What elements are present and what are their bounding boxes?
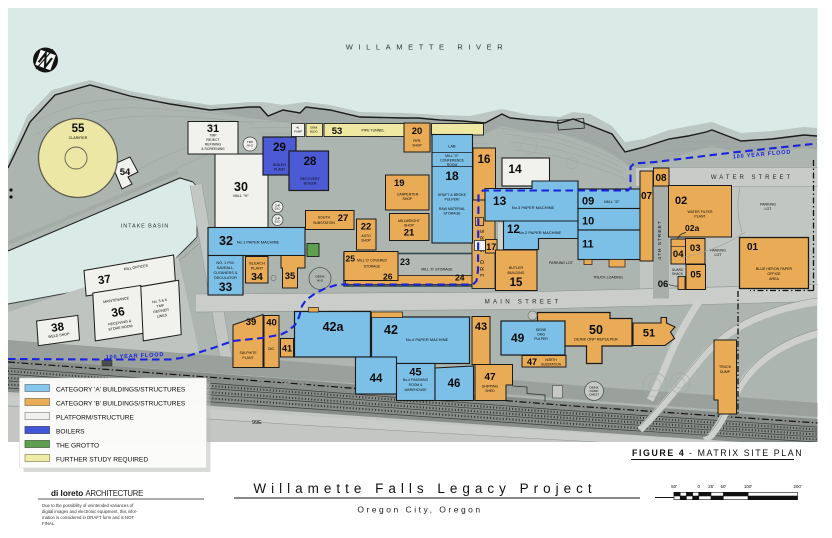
svg-text:LOT: LOT xyxy=(765,207,773,211)
svg-text:RECOVERY: RECOVERY xyxy=(300,177,320,181)
svg-text:BOILERS: BOILERS xyxy=(56,429,85,436)
svg-text:55: 55 xyxy=(72,123,85,135)
svg-text:DIG.: DIG. xyxy=(268,347,275,351)
svg-text:04: 04 xyxy=(673,249,684,260)
svg-text:40: 40 xyxy=(266,318,277,329)
svg-text:06: 06 xyxy=(658,279,669,290)
svg-text:SHED: SHED xyxy=(485,389,495,393)
svg-text:08: 08 xyxy=(655,173,667,184)
svg-text:07: 07 xyxy=(641,191,653,202)
svg-text:INTAKE BASIN: INTAKE BASIN xyxy=(121,224,169,230)
svg-text:Due to the possibility of unin: Due to the possibility of unintended var… xyxy=(42,503,134,508)
svg-text:& SCREENING: & SCREENING xyxy=(201,147,225,151)
svg-text:42: 42 xyxy=(384,323,398,337)
svg-text:27: 27 xyxy=(338,213,349,224)
svg-text:50': 50' xyxy=(671,484,677,489)
svg-text:MILL 'D' COVERED: MILL 'D' COVERED xyxy=(357,259,387,263)
svg-text:49: 49 xyxy=(511,331,525,345)
svg-text:47: 47 xyxy=(527,357,537,367)
svg-text:46: 46 xyxy=(448,378,461,390)
svg-text:14: 14 xyxy=(508,162,522,176)
svg-text:OMG: OMG xyxy=(537,333,545,337)
svg-text:MILL 'D' STORAGE: MILL 'D' STORAGE xyxy=(421,268,453,272)
svg-text:HI-O: HI-O xyxy=(247,144,254,148)
svg-text:STORAGE: STORAGE xyxy=(364,265,381,269)
svg-text:51: 51 xyxy=(643,328,655,340)
svg-text:PLANT: PLANT xyxy=(274,168,286,172)
svg-text:23: 23 xyxy=(400,257,410,267)
svg-text:SHOP: SHOP xyxy=(412,144,422,148)
svg-text:25: 25 xyxy=(346,254,356,264)
svg-text:WAREHOUSE: WAREHOUSE xyxy=(404,388,427,392)
svg-text:SILO: SILO xyxy=(275,219,281,223)
svg-text:11: 11 xyxy=(582,239,594,251)
svg-text:TMP: TMP xyxy=(209,134,217,138)
svg-text:Willamette Falls Legacy Projec: Willamette Falls Legacy Project xyxy=(253,481,596,496)
svg-text:FURTHER STUDY REQUIRED: FURTHER STUDY REQUIRED xyxy=(56,457,148,464)
svg-text:AUTO: AUTO xyxy=(361,234,371,238)
svg-text:PARKING: PARKING xyxy=(760,203,776,207)
svg-text:- MATRIX SITE PLAN: - MATRIX SITE PLAN xyxy=(689,448,803,458)
svg-text:REJECT: REJECT xyxy=(206,138,219,142)
svg-text:02a: 02a xyxy=(685,223,699,233)
svg-text:CLEANERS &: CLEANERS & xyxy=(213,271,238,275)
svg-text:16: 16 xyxy=(478,154,491,166)
svg-text:CHEST: CHEST xyxy=(589,393,599,397)
svg-text:DEINK: DEINK xyxy=(536,328,547,332)
svg-text:09: 09 xyxy=(582,196,594,208)
svg-text:NO. 1 P.M.: NO. 1 P.M. xyxy=(216,261,234,265)
svg-text:PLANT: PLANT xyxy=(694,215,706,219)
svg-text:CATEGORY 'A' BUILDINGS/STRUCTU: CATEGORY 'A' BUILDINGS/STRUCTURES xyxy=(56,387,186,394)
svg-text:22: 22 xyxy=(361,222,372,233)
svg-text:21: 21 xyxy=(404,228,415,239)
svg-text:SHOP: SHOP xyxy=(361,239,371,243)
svg-text:CARPENTER: CARPENTER xyxy=(397,193,419,197)
svg-text:01: 01 xyxy=(747,242,759,253)
svg-text:50: 50 xyxy=(589,323,603,337)
svg-text:20: 20 xyxy=(412,126,423,137)
svg-text:17: 17 xyxy=(486,242,496,252)
svg-text:WILLAMETTE RIVER: WILLAMETTE RIVER xyxy=(346,43,509,52)
svg-text:REFINING: REFINING xyxy=(205,143,222,147)
svg-text:26: 26 xyxy=(383,272,393,282)
svg-text:15: 15 xyxy=(510,277,523,289)
svg-text:37: 37 xyxy=(97,273,112,287)
svg-text:CLARIFIER: CLARIFIER xyxy=(69,136,88,140)
svg-text:PLANT: PLANT xyxy=(242,356,254,360)
svg-text:DEINK ONP REPULPER: DEINK ONP REPULPER xyxy=(574,337,618,342)
svg-text:PARKING LOT: PARKING LOT xyxy=(549,261,574,265)
svg-text:39: 39 xyxy=(246,317,257,328)
svg-text:SAVEALL,: SAVEALL, xyxy=(217,266,235,270)
svg-text:30: 30 xyxy=(234,180,248,194)
svg-text:41: 41 xyxy=(282,344,292,354)
svg-text:SHIPPING: SHIPPING xyxy=(482,385,499,389)
svg-text:CONFERENCE: CONFERENCE xyxy=(440,159,464,163)
svg-text:WATER STREET: WATER STREET xyxy=(711,175,793,181)
svg-text:DUMP: DUMP xyxy=(720,370,731,374)
svg-text:13: 13 xyxy=(493,194,507,208)
svg-text:19: 19 xyxy=(394,178,405,189)
svg-text:mation is considered in DRAFT: mation is considered in DRAFT form and i… xyxy=(42,515,134,520)
svg-text:PULPER: PULPER xyxy=(534,337,548,341)
svg-text:SULPHITE: SULPHITE xyxy=(239,351,257,355)
svg-text:No.1 PAPER MACHINE: No.1 PAPER MACHINE xyxy=(237,240,280,245)
svg-text:ROOM: ROOM xyxy=(447,163,458,167)
svg-text:BLDG.: BLDG. xyxy=(310,130,319,134)
svg-text:WATER FILTER: WATER FILTER xyxy=(687,210,712,214)
svg-text:HI-D: HI-D xyxy=(317,279,324,283)
svg-text:TRUCK: TRUCK xyxy=(719,365,732,369)
svg-text:50': 50' xyxy=(720,484,726,489)
svg-text:25': 25' xyxy=(708,484,714,489)
svg-text:32: 32 xyxy=(219,234,233,248)
svg-text:PIPE: PIPE xyxy=(413,139,421,143)
svg-text:No.3 PAPER MACHINE: No.3 PAPER MACHINE xyxy=(512,205,555,210)
svg-text:36: 36 xyxy=(110,304,126,320)
svg-text:42a: 42a xyxy=(323,320,345,334)
svg-text:47: 47 xyxy=(484,372,496,383)
svg-text:CATEGORY 'B' BUILDINGS/STRUCTU: CATEGORY 'B' BUILDINGS/STRUCTURES xyxy=(56,401,186,408)
svg-text:KRAFT & BROKE: KRAFT & BROKE xyxy=(438,193,467,197)
svg-text:BLUE HERON PAPER: BLUE HERON PAPER xyxy=(756,267,793,271)
svg-text:Oregon City, Oregon: Oregon City, Oregon xyxy=(357,505,482,515)
svg-text:100': 100' xyxy=(744,484,753,489)
svg-text:44: 44 xyxy=(370,373,383,385)
svg-text:54: 54 xyxy=(120,167,131,178)
svg-text:RAW MATERIAL: RAW MATERIAL xyxy=(439,207,465,211)
svg-text:NORTH: NORTH xyxy=(545,358,557,362)
svg-text:BUTLER: BUTLER xyxy=(509,266,524,270)
svg-text:SUBSTATION: SUBSTATION xyxy=(313,221,335,225)
svg-text:PULPER/: PULPER/ xyxy=(445,198,460,202)
svg-text:SOUTH: SOUTH xyxy=(318,216,331,220)
svg-text:MAIN STREET: MAIN STREET xyxy=(485,299,562,306)
svg-text:PIPE TUNNEL: PIPE TUNNEL xyxy=(362,129,385,133)
svg-text:45: 45 xyxy=(409,367,421,379)
svg-text:TRUCK LOADING: TRUCK LOADING xyxy=(593,276,623,280)
svg-text:SHOP: SHOP xyxy=(403,197,414,201)
svg-text:SUBSTATION: SUBSTATION xyxy=(541,363,562,367)
svg-text:29: 29 xyxy=(273,142,286,154)
svg-text:MILL "D": MILL "D" xyxy=(604,199,620,204)
svg-text:digital images and electronic: digital images and electronic equipment,… xyxy=(42,509,138,514)
svg-text:LAB: LAB xyxy=(448,145,456,149)
svg-text:FIGURE 4: FIGURE 4 xyxy=(632,448,685,458)
svg-text:28: 28 xyxy=(304,156,317,168)
svg-text:24: 24 xyxy=(455,273,465,283)
svg-text:MILL "G": MILL "G" xyxy=(445,154,459,158)
svg-text:FINAL.: FINAL. xyxy=(42,521,55,526)
svg-text:35: 35 xyxy=(285,271,296,282)
svg-text:99E: 99E xyxy=(252,420,262,426)
svg-text:No.4 FINISHING: No.4 FINISHING xyxy=(403,378,429,382)
svg-text:BOILER: BOILER xyxy=(304,182,317,186)
svg-text:BUILDING: BUILDING xyxy=(508,271,525,275)
svg-text:02: 02 xyxy=(675,195,687,207)
svg-text:BOILER: BOILER xyxy=(273,163,286,167)
svg-text:SILO: SILO xyxy=(275,206,281,210)
svg-text:PUMP: PUMP xyxy=(294,130,302,134)
svg-text:200': 200' xyxy=(793,484,802,489)
svg-text:43: 43 xyxy=(475,321,487,333)
svg-text:MILL "H": MILL "H" xyxy=(233,193,249,198)
svg-text:No.4 PAPER MACHINE: No.4 PAPER MACHINE xyxy=(406,337,449,342)
svg-text:34: 34 xyxy=(251,271,263,283)
svg-text:LOT: LOT xyxy=(715,253,723,257)
svg-text:33: 33 xyxy=(219,280,233,294)
svg-text:AREA: AREA xyxy=(769,277,779,281)
svg-text:03: 03 xyxy=(690,243,701,254)
svg-text:SHACK: SHACK xyxy=(672,272,684,276)
svg-text:4TH STREET: 4TH STREET xyxy=(657,220,663,259)
svg-text:ARCHITECTURE: ARCHITECTURE xyxy=(86,489,144,498)
svg-text:18: 18 xyxy=(445,169,459,183)
svg-text:No.2 PAPER MACHINE: No.2 PAPER MACHINE xyxy=(519,230,562,235)
svg-text:ROOM &: ROOM & xyxy=(409,383,423,387)
svg-text:MILLWRIGHT: MILLWRIGHT xyxy=(398,219,421,223)
svg-text:10: 10 xyxy=(582,216,594,228)
svg-text:PLANT: PLANT xyxy=(251,266,264,271)
svg-text:di loreto: di loreto xyxy=(51,489,83,498)
svg-text:PLATFORM/STRUCTURE: PLATFORM/STRUCTURE xyxy=(56,415,135,422)
svg-text:OFFICE: OFFICE xyxy=(767,272,781,276)
svg-text:53: 53 xyxy=(332,126,343,137)
svg-text:THE GROTTO: THE GROTTO xyxy=(56,443,99,450)
svg-text:05: 05 xyxy=(690,270,701,281)
svg-text:STORAGE: STORAGE xyxy=(443,212,461,216)
